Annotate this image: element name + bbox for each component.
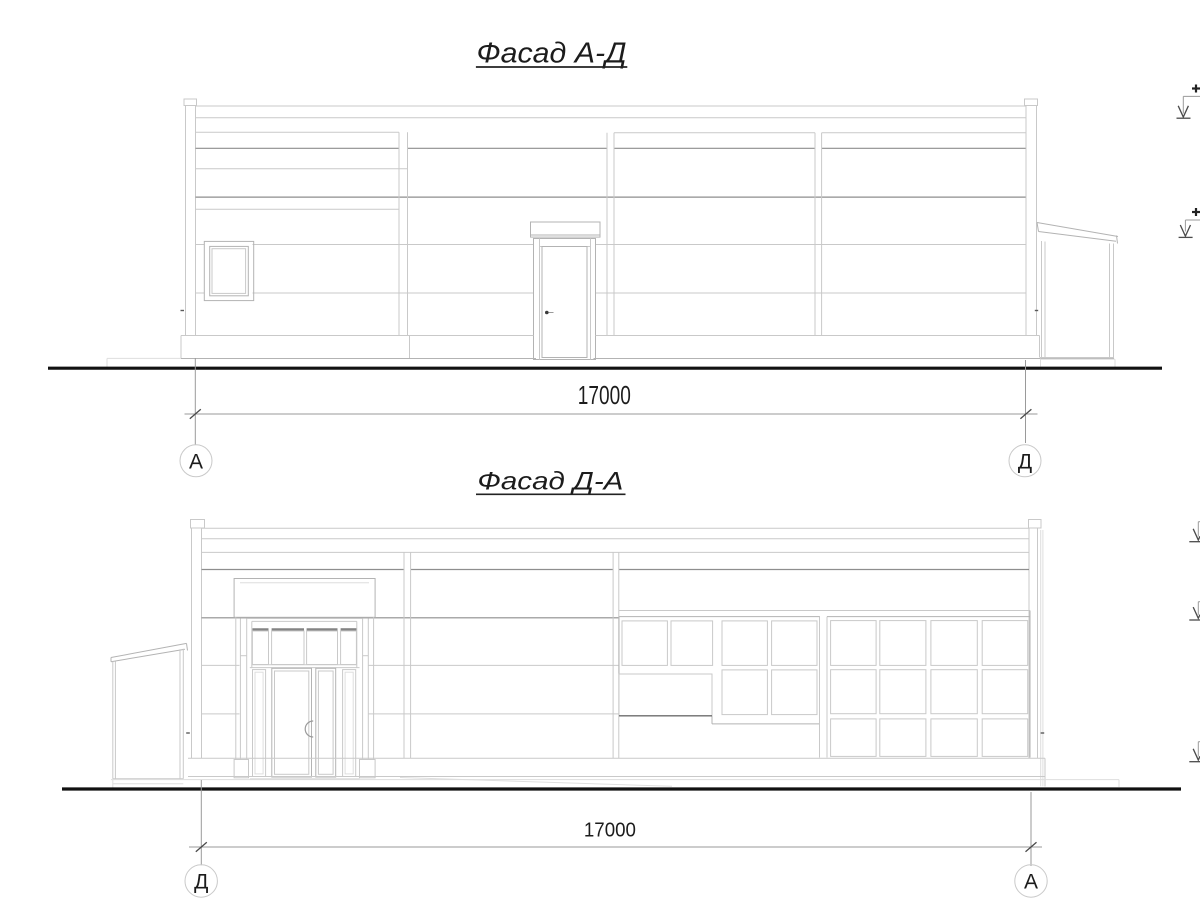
svg-text:Д: Д xyxy=(1018,450,1032,473)
svg-text:17000: 17000 xyxy=(584,820,636,842)
svg-text:Фасад Д-А: Фасад Д-А xyxy=(477,467,623,495)
svg-text:А: А xyxy=(1024,871,1038,894)
svg-text:17000: 17000 xyxy=(578,382,631,410)
svg-text:Д: Д xyxy=(194,871,208,894)
svg-text:Фасад А-Д: Фасад А-Д xyxy=(477,37,627,69)
svg-text:А: А xyxy=(189,450,203,473)
